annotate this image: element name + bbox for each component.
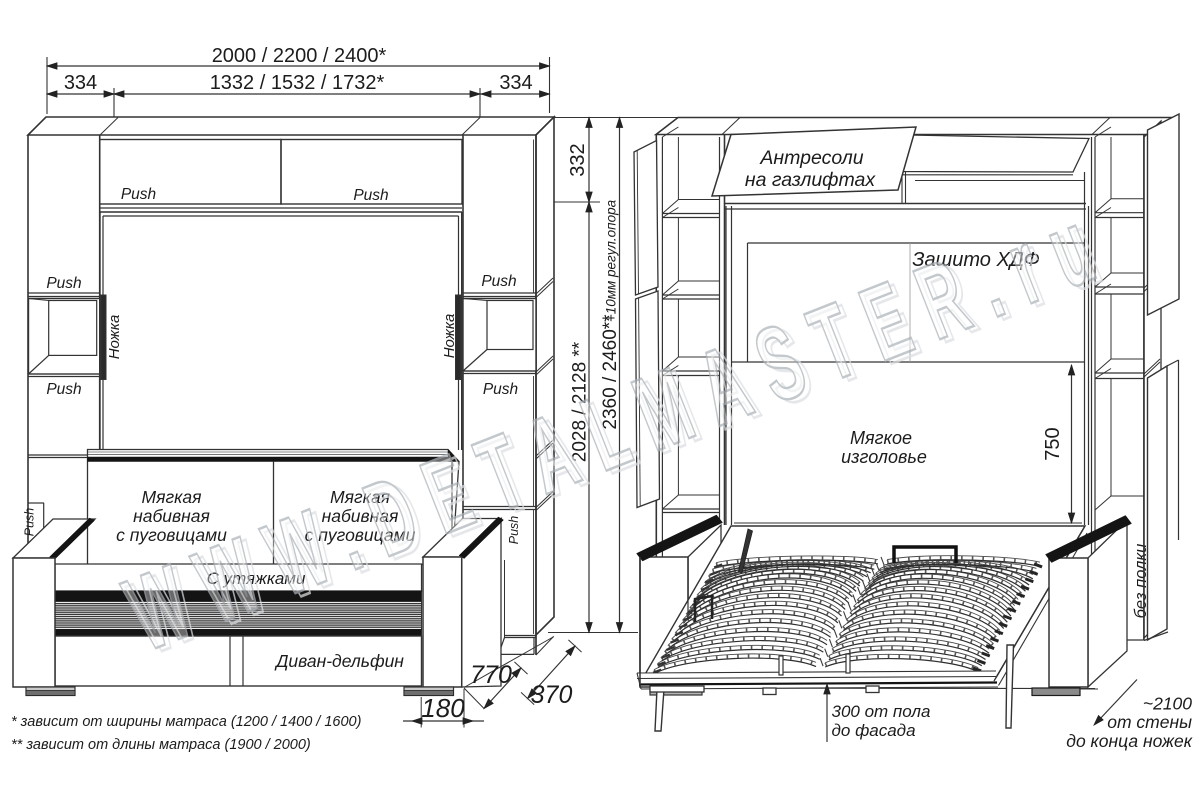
svg-text:Мягкая: Мягкая <box>142 487 202 507</box>
svg-text:Push: Push <box>23 508 37 537</box>
svg-text:+10мм регул.опора: +10мм регул.опора <box>604 199 619 322</box>
svg-text:334: 334 <box>499 72 532 94</box>
svg-text:~2100: ~2100 <box>1143 694 1192 714</box>
svg-text:Push: Push <box>481 273 516 290</box>
svg-text:** зависит от длины матраса (1: ** зависит от длины матраса (1900 / 2000… <box>11 737 311 753</box>
svg-text:770: 770 <box>470 661 512 689</box>
svg-text:до фасада: до фасада <box>832 721 916 740</box>
svg-text:Push: Push <box>353 187 388 204</box>
svg-text:от стены: от стены <box>1107 712 1192 732</box>
svg-text:на газлифтах: на газлифтах <box>745 169 876 191</box>
svg-text:Ножка: Ножка <box>441 314 458 359</box>
svg-text:Push: Push <box>121 186 156 203</box>
svg-text:Push: Push <box>483 381 518 398</box>
svg-text:332: 332 <box>567 143 589 176</box>
svg-text:750: 750 <box>1042 427 1064 460</box>
svg-text:без полки: без полки <box>1132 544 1150 619</box>
svg-text:2000 / 2200 / 2400*: 2000 / 2200 / 2400* <box>212 45 387 67</box>
svg-text:Ножка: Ножка <box>106 315 123 360</box>
svg-text:Мягкое: Мягкое <box>850 428 912 448</box>
svg-text:180: 180 <box>421 693 465 723</box>
svg-text:1332 / 1532 / 1732*: 1332 / 1532 / 1732* <box>210 72 385 94</box>
svg-text:300 от пола: 300 от пола <box>832 702 931 721</box>
svg-text:Push: Push <box>46 275 81 292</box>
svg-text:* зависит от ширины матраса (1: * зависит от ширины матраса (1200 / 1400… <box>11 714 361 730</box>
svg-text:до конца ножек: до конца ножек <box>1066 731 1192 751</box>
svg-text:370: 370 <box>531 681 573 709</box>
svg-text:Антресоли: Антресоли <box>759 147 863 169</box>
svg-text:Push: Push <box>46 381 81 398</box>
svg-text:Диван-дельфин: Диван-дельфин <box>274 651 404 671</box>
svg-text:334: 334 <box>64 72 97 94</box>
svg-text:изголовье: изголовье <box>841 447 927 467</box>
svg-text:набивная: набивная <box>133 506 210 526</box>
